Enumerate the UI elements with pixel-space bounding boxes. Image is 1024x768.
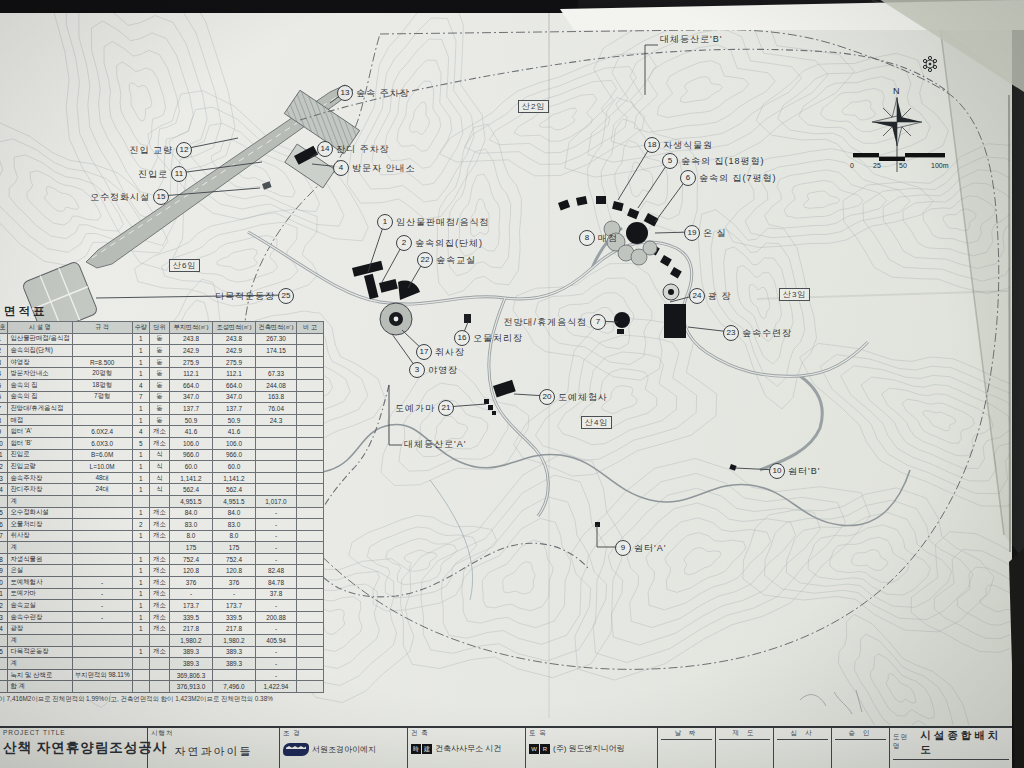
project-title: 산책 자연휴양림조성공사: [3, 739, 144, 757]
architecture-firm: 건축사사무소 시건: [435, 743, 501, 754]
callout-label: 오수정화시설: [90, 191, 150, 204]
area-table: 번호시 설 명규 격수량단위부지면적(㎡)조성면적(㎡)건축면적(㎡)비 고 1…: [0, 321, 324, 693]
callout-number: 24: [689, 288, 705, 304]
training-hall-ring: [663, 284, 679, 300]
table-row: 18자생식물원1개소752.4752.4-: [0, 553, 323, 565]
trail-label: 대체등산로'B': [660, 33, 722, 46]
column-header: 수량: [132, 322, 149, 334]
svg-text:25: 25: [873, 162, 881, 169]
table-row: 16오물처리장2개소83.083.0-: [0, 519, 323, 531]
table-row: 20도예체험사-1개소37637684.78: [0, 577, 323, 589]
parcel-label: 산2임: [518, 100, 549, 113]
column-header: 조성면적(㎡): [212, 322, 255, 334]
callout-25: 25다목적운동장: [212, 288, 294, 304]
callout-number: 4: [333, 160, 349, 176]
callout-label: 자생식물원: [663, 139, 713, 152]
table-row: 계1,980.21,980.2405.94: [0, 635, 323, 647]
callout-2: 2숲속의집(단체): [396, 235, 486, 251]
column-header: 비 고: [296, 322, 323, 334]
callout-label: 임산물판매점/음식점: [396, 216, 490, 229]
landscape-firm-logo: [283, 743, 309, 756]
project-title-cell: PROJECT TITLE 산책 자연휴양림조성공사: [0, 728, 148, 768]
callout-label: 방문자 안내소: [352, 162, 416, 175]
callout-label: 숲속의 집(7평형): [699, 172, 777, 185]
callout-number: 21: [438, 400, 454, 416]
table-row: 25다목적운동장1개소389.3389.3-: [0, 646, 323, 658]
table-row: 11진입로B=6.0M1식966.0966.0: [0, 449, 323, 461]
benchmark-symbol: [923, 56, 936, 71]
callout-number: 12: [176, 142, 192, 158]
callout-5: 5숲속의 집(18평형): [662, 153, 768, 169]
callout-number: 14: [317, 141, 333, 157]
architecture-cell: 건 축 時建 건축사사무소 시건: [408, 728, 526, 768]
pencil-marks: [800, 690, 862, 714]
table-row: 계175175-: [0, 542, 323, 554]
callout-label: 취사장: [435, 346, 465, 359]
column-header: 부지면적(㎡): [169, 322, 212, 334]
project-title-label: PROJECT TITLE: [3, 729, 144, 736]
callout-label: 전망대/휴게음식점: [503, 316, 587, 329]
svg-text:0: 0: [850, 162, 854, 169]
title-block: PROJECT TITLE 산책 자연휴양림조성공사 시행처 자연과아이들 조 …: [0, 726, 1012, 768]
table-row: 13숲속주차장48대1식1,141.21,141.2: [0, 472, 323, 484]
callout-label: 숲속 주차장: [356, 87, 410, 100]
landscape-cell: 조 경 서원조경아이에지: [280, 728, 408, 768]
callout-number: 20: [539, 389, 555, 405]
sign-col-approved: 승 인: [832, 728, 890, 768]
table-row: 15오수정화시설1개소84.084.0-: [0, 507, 323, 519]
column-header: 번호: [0, 322, 8, 334]
table-row: 계389.3389.3-: [0, 658, 323, 670]
table-row: 5숲속의 집18평형4동664.0664.0244.08: [0, 379, 323, 391]
callout-15: 15오수정화시설: [87, 189, 169, 205]
architecture-firm-logo: 時建: [411, 744, 432, 754]
callout-label: 숲속수련장: [742, 327, 792, 340]
callout-number: 11: [171, 166, 187, 182]
sign-col-date: 날 짜: [658, 728, 716, 768]
table-row: 21도예가마-1개소--37.8: [0, 588, 323, 600]
table-row: 22숲속교실-1개소173.7173.7-: [0, 600, 323, 612]
sign-col-drafted: 제 도: [716, 728, 774, 768]
callout-20: 20도예체험사: [539, 389, 611, 405]
column-header: 단위: [149, 322, 169, 334]
callout-number: 3: [409, 362, 425, 378]
column-header: 시 설 명: [8, 322, 72, 334]
callout-10: 10쉼터'B': [769, 463, 823, 479]
callout-label: 쉼터'A': [634, 542, 666, 555]
area-table-footnote: 합이 7,416M2이므로 전체면적의 1.99%이고, 건축연면적의 합이 1…: [0, 695, 324, 704]
callout-9: 9쉼터'A': [615, 540, 669, 556]
parcel-label: 산3임: [779, 288, 810, 301]
callout-label: 야영장: [428, 364, 458, 377]
scale-bar: 0 25 50 100m: [850, 153, 949, 169]
callout-label: 진입 교량: [129, 144, 173, 157]
table-row: 12진입교량L=10.0M1식60.060.0: [0, 461, 323, 473]
callout-label: 도예체험사: [558, 391, 608, 404]
sign-col-checked: 심 사: [774, 728, 832, 768]
callout-14: 14잔디 주차장: [317, 141, 393, 157]
drawing-title: 시설종합배치도: [920, 729, 1009, 757]
callout-label: 오물처리장: [473, 332, 523, 345]
table-row: 6숲속의 집7평형7동347.0347.0163.8: [0, 391, 323, 403]
callout-number: 13: [337, 85, 353, 101]
drawing-name-cell: 도면명 시설종합배치도: [890, 728, 1012, 768]
callout-number: 2: [396, 235, 412, 251]
civil-firm-logo: WR: [529, 744, 550, 754]
callout-label: 진입로: [138, 168, 168, 181]
callout-1: 1임산물판매점/음식점: [377, 214, 493, 230]
callout-4: 4방문자 안내소: [333, 160, 419, 176]
callout-label: 도예가마: [395, 402, 435, 415]
table-row: 합 계376,913.07,496.01,422.94: [0, 681, 323, 693]
table-row: 19온실1개소120.8120.882.48: [0, 565, 323, 577]
table-row: 2숲속의집(단체)1동242.9242.9174.15: [0, 345, 323, 357]
callout-21: 21도예가마: [392, 400, 454, 416]
column-header: 규 격: [72, 322, 132, 334]
callout-label: 숲속의 집(18평형): [681, 155, 765, 168]
column-header: 건축면적(㎡): [255, 322, 296, 334]
callout-19: 19온 실: [684, 225, 730, 241]
callout-number: 7: [590, 314, 606, 330]
callout-label: 쉼터'B': [788, 465, 820, 478]
callout-label: 온 실: [703, 227, 727, 240]
callout-3: 3야영장: [409, 362, 461, 378]
table-row: 24광장1개소217.8217.8-: [0, 623, 323, 635]
area-table-panel: 면적표 번호시 설 명규 격수량단위부지면적(㎡)조성면적(㎡)건축면적(㎡)비…: [0, 304, 324, 704]
callout-label: 매점: [598, 232, 618, 245]
callout-number: 17: [416, 344, 432, 360]
photo-background-strip: [0, 0, 578, 13]
vertical-fold-crease: [548, 13, 550, 718]
civil-firm: (주) 원도엔지니어링: [553, 743, 625, 754]
trail-label: 대체등산로'A': [404, 438, 466, 451]
callout-number: 18: [644, 137, 660, 153]
callout-label: 숲속의집(단체): [415, 237, 483, 250]
parcel-label: 산4임: [581, 416, 612, 429]
table-row: 7전망대/휴게음식점1동137.7137.776.04: [0, 403, 323, 415]
callout-number: 6: [680, 170, 696, 186]
table-row: 1임산물판매점/음식점1동243.8243.8267.30: [0, 333, 323, 345]
callout-number: 22: [417, 252, 433, 268]
civil-cell: 토 목 WR (주) 원도엔지니어링: [526, 728, 658, 768]
svg-text:N: N: [893, 86, 900, 96]
table-row: 계4,951.54,951.51,017.0: [0, 495, 323, 507]
callout-17: 17취사장: [416, 344, 468, 360]
table-row: 23숲속수련장-1개소339.5339.5200.88: [0, 611, 323, 623]
callout-number: 15: [153, 189, 169, 205]
callout-24: 24광 장: [689, 288, 735, 304]
callout-label: 광 장: [708, 290, 732, 303]
callout-label: 다목적운동장: [215, 290, 275, 303]
table-row: 녹지 및 산책로부지면적의 98.11%369,806.3-: [0, 669, 323, 681]
table-row: 9쉼터 'A'6.0X2.44개소41.641.6: [0, 426, 323, 438]
parcel-label: 산6임: [169, 259, 200, 272]
callout-number: 10: [769, 463, 785, 479]
client-name: 자연과아이들: [151, 744, 276, 759]
callout-number: 19: [684, 225, 700, 241]
callout-18: 18자생식물원: [644, 137, 716, 153]
table-row: 17취사장1개소8.08.0-: [0, 530, 323, 542]
callout-number: 5: [662, 153, 678, 169]
svg-text:100m: 100m: [931, 162, 949, 169]
callout-23: 23숲속수련장: [723, 325, 795, 341]
callout-7: 7전망대/휴게음식점: [500, 314, 606, 330]
table-row: 4방문자안내소20평형1동112.1112.167.33: [0, 368, 323, 380]
landscape-firm: 서원조경아이에지: [312, 744, 376, 755]
photo-of-site-plan: N 0 25 50: [0, 0, 1024, 768]
callout-number: 9: [615, 540, 631, 556]
callout-number: 8: [579, 230, 595, 246]
round-deck: [380, 303, 412, 335]
area-table-title: 면적표: [4, 304, 324, 319]
callout-6: 6숲속의 집(7평형): [680, 170, 780, 186]
svg-text:50: 50: [899, 162, 907, 169]
callout-number: 23: [723, 325, 739, 341]
callout-label: 숲속교실: [436, 254, 476, 267]
area-table-header: 번호시 설 명규 격수량단위부지면적(㎡)조성면적(㎡)건축면적(㎡)비 고: [0, 322, 323, 334]
table-row: 3야영장R=8.5001동275.9275.9: [0, 356, 323, 368]
callout-number: 1: [377, 214, 393, 230]
callout-13: 13숲속 주차장: [337, 85, 413, 101]
callout-22: 22숲속교실: [417, 252, 479, 268]
table-row: 8매점1동50.950.924.3: [0, 414, 323, 426]
callout-8: 8매점: [579, 230, 621, 246]
callout-number: 25: [278, 288, 294, 304]
callout-11: 11진입로: [135, 166, 187, 182]
callout-label: 잔디 주차장: [336, 143, 390, 156]
client-cell: 시행처 자연과아이들: [148, 728, 280, 768]
callout-12: 12진입 교량: [126, 142, 192, 158]
table-row: 14잔디주차장24대1식562.4562.4: [0, 484, 323, 496]
table-row: 10쉼터 'B'6.0X3.05개소106.0106.0: [0, 437, 323, 449]
